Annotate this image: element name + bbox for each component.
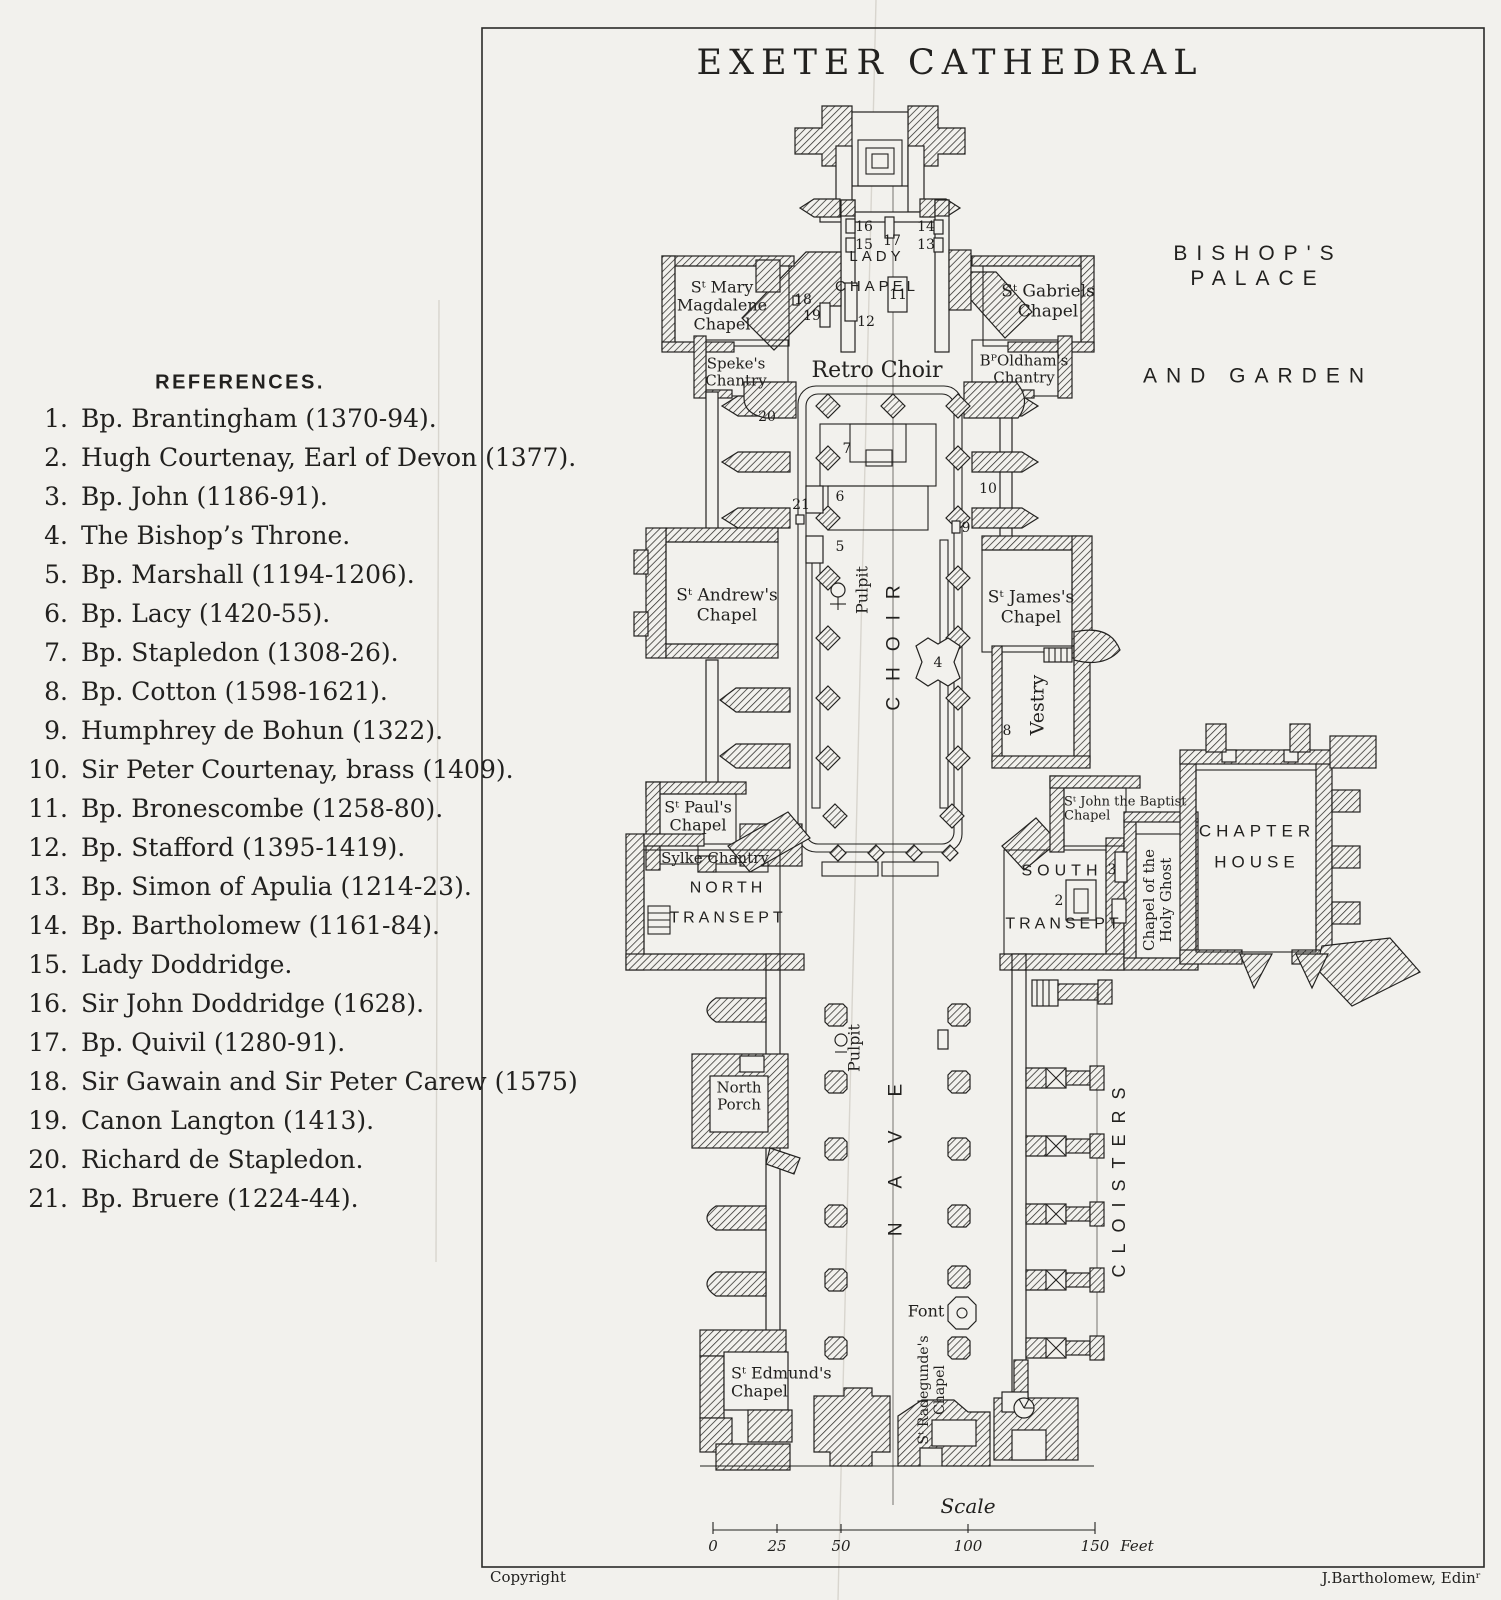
plan-marker-number-19: 19: [803, 308, 821, 324]
scale-tick-100: 100: [954, 1537, 983, 1555]
reference-text: Sir Peter Courtenay, brass (1409).: [81, 755, 514, 784]
scale-tick-50: 50: [831, 1537, 850, 1555]
plan-marker-number-8: 8: [1003, 723, 1012, 739]
south-choir-aisle: [964, 382, 1038, 542]
reference-item: 19.Canon Langton (1413).: [14, 1106, 589, 1145]
reference-number: 3.: [14, 482, 68, 511]
reference-item: 16.Sir John Doddridge (1628).: [14, 989, 589, 1028]
plan-label-north-transept: NORTH TRANSEPT: [669, 873, 786, 932]
reference-text: Bp. Bartholomew (1161-84).: [81, 911, 440, 940]
plan-label-sylke-chantry: Sylke Chantry: [661, 849, 769, 867]
reference-number: 17.: [14, 1028, 68, 1057]
plan-marker-number-2: 2: [1055, 893, 1064, 909]
reference-text: Sir Gawain and Sir Peter Carew (1575): [81, 1067, 578, 1096]
plan-marker-number-20: 20: [758, 409, 776, 425]
reference-number: 6.: [14, 599, 68, 628]
plan-label-cloisters: CLOISTERS: [1109, 1076, 1131, 1277]
engraved-plan-page: .h{fill:url(#hatch);stroke:#232220;strok…: [0, 0, 1501, 1600]
nave-south-wall-cloisters: [1012, 954, 1104, 1398]
reference-number: 8.: [14, 677, 68, 706]
reference-text: Bp. Bruere (1224-44).: [81, 1184, 359, 1213]
plan-label-st-john-the-baptist-chapel: Sᵗ John the Baptist Chapel: [1064, 796, 1186, 825]
reference-number: 1.: [14, 404, 68, 433]
plan-label-and-garden: AND GARDEN: [1143, 363, 1373, 388]
plan-marker-number-3: 3: [1108, 862, 1117, 878]
reference-text: Bp. Stapledon (1308-26).: [81, 638, 399, 667]
plan-label-pulpit-choir: Pulpit: [852, 566, 871, 614]
scale-tick-0: 0: [708, 1537, 718, 1555]
plan-label-scale-title: Scale: [940, 1494, 995, 1518]
plan-marker-number-17: 17: [883, 233, 901, 249]
reference-item: 2.Hugh Courtenay, Earl of Devon (1377).: [14, 443, 589, 482]
reference-item: 15.Lady Doddridge.: [14, 950, 589, 989]
scale-unit-label: Feet: [1120, 1537, 1153, 1555]
nave-north-wall: [692, 954, 800, 1392]
reference-item: 6.Bp. Lacy (1420-55).: [14, 599, 589, 638]
reference-text: Sir John Doddridge (1628).: [81, 989, 424, 1018]
reference-number: 5.: [14, 560, 68, 589]
reference-number: 4.: [14, 521, 68, 550]
plan-marker-number-5: 5: [836, 539, 845, 555]
reference-item: 21.Bp. Bruere (1224-44).: [14, 1184, 589, 1223]
reference-number: 16.: [14, 989, 68, 1018]
reference-number: 20.: [14, 1145, 68, 1174]
references-list: 1.Bp. Brantingham (1370-94).2.Hugh Court…: [14, 404, 589, 1223]
plan-label-south-transept-line1: SOUTH: [1022, 861, 1103, 880]
reference-text: Bp. Lacy (1420-55).: [81, 599, 330, 628]
reference-item: 8.Bp. Cotton (1598-1621).: [14, 677, 589, 716]
plan-label-spekes-chantry: Speke's Chantry: [705, 356, 766, 389]
choir-pulpit-icon: [830, 583, 846, 610]
reference-text: Lady Doddridge.: [81, 950, 292, 979]
reference-number: 10.: [14, 755, 68, 784]
reference-number: 11.: [14, 794, 68, 823]
reference-item: 13.Bp. Simon of Apulia (1214-23).: [14, 872, 589, 911]
reference-number: 2.: [14, 443, 68, 472]
reference-text: Bp. Bronescombe (1258-80).: [81, 794, 443, 823]
plan-label-bp-oldhams-chantry: BᴾOldham's Chantry: [980, 353, 1069, 386]
reference-text: Bp. Simon of Apulia (1214-23).: [81, 872, 472, 901]
reference-item: 14.Bp. Bartholomew (1161-84).: [14, 911, 589, 950]
reference-number: 15.: [14, 950, 68, 979]
reference-text: Bp. Stafford (1395-1419).: [81, 833, 405, 862]
plan-marker-number-21: 21: [792, 497, 810, 513]
plan-label-chapel-of-the-holy-ghost: Chapel of the Holy Ghost: [1141, 849, 1176, 951]
reference-text: Bp. Cotton (1598-1621).: [81, 677, 388, 706]
plan-marker-number-6: 6: [836, 489, 845, 505]
reference-text: Bp. John (1186-91).: [81, 482, 328, 511]
plan-marker-number-13: 13: [917, 237, 935, 253]
font-icon: [948, 1297, 976, 1329]
reference-number: 19.: [14, 1106, 68, 1135]
plan-label-retro-choir: Retro Choir: [812, 358, 943, 384]
plan-label-st-radegundes-chapel: Sᵗ Radegunde's Chapel: [916, 1335, 948, 1444]
reference-text: Canon Langton (1413).: [81, 1106, 374, 1135]
page-title: EXETER CATHEDRAL: [697, 43, 1204, 83]
vestry-walls: [992, 630, 1120, 768]
plan-label-st-edmunds-chapel: Sᵗ Edmund's Chapel: [731, 1364, 832, 1399]
reference-number: 12.: [14, 833, 68, 862]
plan-marker-number-18: 18: [794, 292, 812, 308]
plan-label-north-porch: North Porch: [716, 1080, 761, 1113]
plan-label-choir: CHOIR: [884, 569, 907, 710]
plan-marker-number-14: 14: [917, 219, 935, 235]
reference-item: 3.Bp. John (1186-91).: [14, 482, 589, 521]
plan-marker-number-11: 11: [889, 287, 907, 303]
plan-label-south-transept-line2: TRANSEPT: [1005, 914, 1122, 933]
plan-label-vestry: Vestry: [1027, 675, 1050, 735]
plan-marker-number-9: 9: [962, 520, 971, 536]
plan-label-nave: NAVE: [886, 1050, 909, 1236]
scale-bar: [713, 1522, 1095, 1534]
plan-label-pulpit-nave: Pulpit: [844, 1024, 863, 1072]
reference-item: 4.The Bishop’s Throne.: [14, 521, 589, 560]
reference-item: 12.Bp. Stafford (1395-1419).: [14, 833, 589, 872]
plan-label-bishops-palace: BISHOP'S PALACE: [1137, 241, 1380, 291]
plan-label-st-mary-magdalene-chapel: Sᵗ Mary Magdalene Chapel: [677, 278, 767, 333]
reference-item: 9.Humphrey de Bohun (1322).: [14, 716, 589, 755]
plan-marker-number-16: 16: [855, 219, 873, 235]
reference-item: 11.Bp. Bronescombe (1258-80).: [14, 794, 589, 833]
reference-item: 18.Sir Gawain and Sir Peter Carew (1575): [14, 1067, 589, 1106]
reference-text: Hugh Courtenay, Earl of Devon (1377).: [81, 443, 576, 472]
reference-number: 18.: [14, 1067, 68, 1096]
scale-tick-25: 25: [767, 1537, 786, 1555]
plan-label-st-gabriels-chapel: Sᵗ Gabriels Chapel: [1001, 282, 1095, 321]
reference-item: 1.Bp. Brantingham (1370-94).: [14, 404, 589, 443]
plan-marker-number-15: 15: [855, 237, 873, 253]
plan-marker-number-10: 10: [979, 481, 997, 497]
reference-item: 17.Bp. Quivil (1280-91).: [14, 1028, 589, 1067]
plan-label-st-andrews-chapel: Sᵗ Andrew's Chapel: [676, 586, 778, 625]
reference-text: Humphrey de Bohun (1322).: [81, 716, 443, 745]
reference-number: 7.: [14, 638, 68, 667]
plan-label-st-pauls-chapel: Sᵗ Paul's Chapel: [664, 798, 732, 833]
reference-text: Bp. Brantingham (1370-94).: [81, 404, 437, 433]
reference-item: 5.Bp. Marshall (1194-1206).: [14, 560, 589, 599]
reference-number: 13.: [14, 872, 68, 901]
reference-text: Richard de Stapledon.: [81, 1145, 363, 1174]
plan-label-chapter-house: CHAPTER HOUSE: [1199, 816, 1315, 879]
plan-marker-number-4: 4: [934, 655, 943, 671]
reference-number: 14.: [14, 911, 68, 940]
reference-item: 7.Bp. Stapledon (1308-26).: [14, 638, 589, 677]
plan-label-st-jamess-chapel: Sᵗ James's Chapel: [988, 588, 1075, 627]
plan-marker-number-12: 12: [857, 314, 875, 330]
plan-marker-number-7: 7: [843, 441, 852, 457]
reference-text: The Bishop’s Throne.: [81, 521, 350, 550]
reference-item: 20.Richard de Stapledon.: [14, 1145, 589, 1184]
scale-tick-150: 150: [1081, 1537, 1110, 1555]
reference-number: 21.: [14, 1184, 68, 1213]
references-heading: REFERENCES.: [155, 372, 325, 395]
reference-text: Bp. Quivil (1280-91).: [81, 1028, 345, 1057]
plan-label-font: Font: [908, 1301, 945, 1320]
reference-text: Bp. Marshall (1194-1206).: [81, 560, 415, 589]
copyright-note: Copyright: [490, 1568, 566, 1586]
reference-number: 9.: [14, 716, 68, 745]
engraver-imprint: J.Bartholomew, Edinʳ: [1322, 1569, 1481, 1587]
reference-item: 10.Sir Peter Courtenay, brass (1409).: [14, 755, 589, 794]
